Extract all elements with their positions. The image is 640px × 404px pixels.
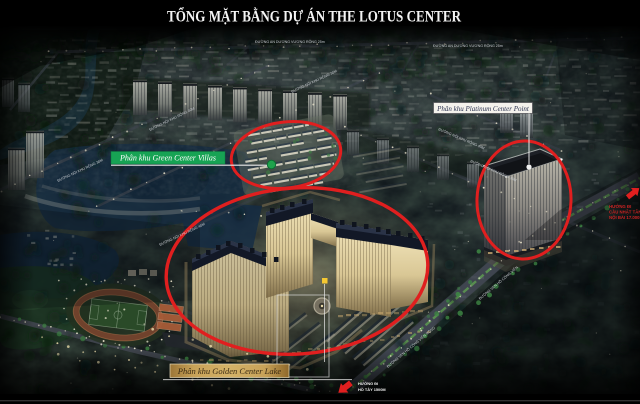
svg-text:ĐƯỜNG AN DƯƠNG VƯƠNG RỘNG 25m: ĐƯỜNG AN DƯƠNG VƯƠNG RỘNG 25m xyxy=(433,43,503,48)
svg-text:Phân khu Green Center Villas: Phân khu Green Center Villas xyxy=(119,154,216,163)
svg-text:HƯỚNG ĐI: HƯỚNG ĐI xyxy=(609,204,631,209)
svg-text:Phân khu Golden Center Lake: Phân khu Golden Center Lake xyxy=(177,366,282,376)
svg-text:TỔNG MẶT BẰNG DỰ ÁN THE LOTUS: TỔNG MẶT BẰNG DỰ ÁN THE LOTUS CENTER xyxy=(167,7,462,25)
svg-text:HƯỚNG ĐI: HƯỚNG ĐI xyxy=(358,381,378,386)
svg-text:Phân khu Platinum Center Point: Phân khu Platinum Center Point xyxy=(436,105,530,113)
svg-text:NỘI BÀI 17.000M: NỘI BÀI 17.000M xyxy=(609,215,640,220)
svg-text:ĐƯỜNG AN DƯƠNG VƯƠNG RỘNG 25m: ĐƯỜNG AN DƯƠNG VƯƠNG RỘNG 25m xyxy=(255,39,325,44)
svg-text:HỒ TÂY 1500M: HỒ TÂY 1500M xyxy=(358,387,386,392)
svg-text:CẦU NHẬT TÂN: CẦU NHẬT TÂN xyxy=(609,210,640,215)
